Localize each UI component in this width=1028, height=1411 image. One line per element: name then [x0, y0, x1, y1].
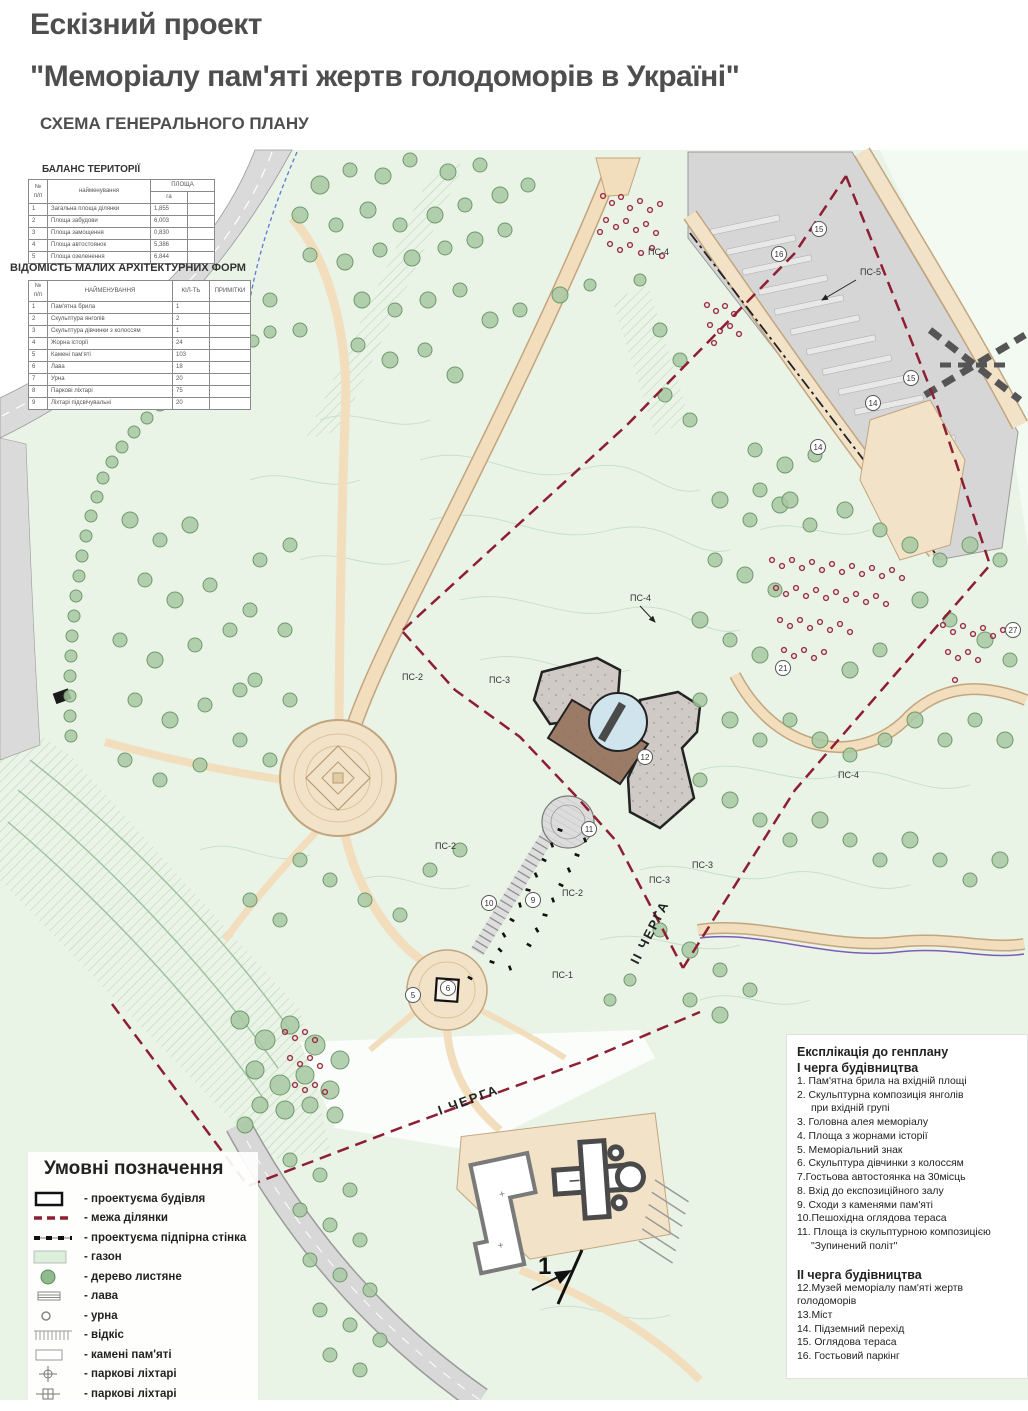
slope-symbol — [32, 1327, 74, 1343]
urn-symbol — [32, 1308, 74, 1324]
explication-item: 10.Пешохідна оглядова тераса — [797, 1212, 1019, 1226]
main-circular-plaza — [280, 720, 396, 836]
table-row: 4Площа автостоянок5,386 — [29, 240, 215, 252]
site-boundary-symbol — [32, 1210, 74, 1226]
legend-item: - камені пам'яті — [32, 1346, 254, 1363]
badge: 14 — [814, 443, 823, 452]
explication-item: 13.Міст — [797, 1309, 1019, 1323]
legend-panel: Умовні позначення - проектуєма будівля -… — [28, 1152, 258, 1411]
explication-item: 4. Площа з жорнами історії — [797, 1130, 1019, 1144]
lawn-symbol — [32, 1249, 74, 1265]
maf-panel: ВІДОМІСТЬ МАЛИХ АРХІТЕКТУРНИХ ФОРМ № п/п… — [10, 262, 251, 410]
legend-item: - проектуєма підпірна стінка — [32, 1229, 254, 1246]
explication-item: 1. Пам'ятна брила на вхідній площі — [797, 1075, 1019, 1089]
explication-item: 12.Музей меморіалу пам'яті жертв голодом… — [797, 1282, 1019, 1309]
ps-label: ПС-2 — [402, 672, 423, 682]
badge: 12 — [641, 753, 650, 762]
table-row: 3Площа замощення0,830 — [29, 228, 215, 240]
ps-label: ПС-4 — [838, 770, 859, 780]
deciduous-tree-symbol — [32, 1269, 74, 1285]
legend-item: - паркові ліхтарі — [32, 1366, 254, 1383]
badge: 16 — [775, 250, 784, 259]
legend-label: - камені пам'яті — [84, 1349, 172, 1361]
page-subtitle: СХЕМА ГЕНЕРАЛЬНОГО ПЛАНУ — [40, 114, 309, 134]
col-header: ПЛОЩА — [151, 180, 215, 192]
col-header: КІЛ-ТЬ — [173, 281, 210, 302]
legend-item: - дерево листяне — [32, 1268, 254, 1285]
table-row: 1Пам'ятна брила1 — [29, 302, 251, 314]
col-header: найменування — [48, 180, 151, 204]
badge: 10 — [485, 899, 494, 908]
explication-item: при вхідній групі — [797, 1102, 1019, 1116]
ps-label: ПС-4 — [648, 247, 669, 257]
legend-label: - урна — [84, 1310, 118, 1322]
ps-label: ПС-2 — [562, 888, 583, 898]
badge: 6 — [446, 984, 451, 993]
legend-item: - проектуєма будівля — [32, 1190, 254, 1207]
explication-item: 6. Скульптура дівчинки з колоссям — [797, 1157, 1019, 1171]
table-row: 7Урна20 — [29, 374, 251, 386]
legend-label: - паркові ліхтарі — [84, 1368, 177, 1380]
badge: 15 — [907, 374, 916, 383]
col-header: № п/п — [29, 180, 48, 204]
legend-label: - проектуєма підпірна стінка — [84, 1232, 246, 1244]
legend-item: - газон — [32, 1249, 254, 1266]
explication-item: 16. Гостьовий паркінг — [797, 1350, 1019, 1364]
explication-item: 7.Гостьова автостоянка на 30місць — [797, 1171, 1019, 1185]
col-header: га — [151, 192, 188, 204]
badge: 15 — [815, 225, 824, 234]
explication-item: "Зупинений політ" — [797, 1240, 1019, 1254]
retaining-wall-symbol — [32, 1230, 74, 1246]
balance-table-title: БАЛАНС ТЕРИТОРІЇ — [42, 164, 215, 175]
legend-item: - урна — [32, 1307, 254, 1324]
table-row: 6Лава18 — [29, 362, 251, 374]
legend-label: - лава — [84, 1290, 118, 1302]
badge: 11 — [585, 825, 594, 834]
col-header: № п/п — [29, 281, 48, 302]
legend-label: - проектуєма будівля — [84, 1193, 205, 1205]
explication-item: 14. Підземний перехід — [797, 1323, 1019, 1337]
col-header: НАЙМЕНУВАННЯ — [48, 281, 173, 302]
page-title-line1: Ескізний проект — [30, 8, 262, 42]
legend-label: - паркові ліхтарі — [84, 1388, 177, 1400]
legend-label: - межа ділянки — [84, 1212, 168, 1224]
phase1-heading: І черга будівництва — [797, 1061, 1019, 1075]
legend-item: - паркові ліхтарі — [32, 1385, 254, 1402]
explication-item: 5. Меморіальний знак — [797, 1144, 1019, 1158]
legend-label: - відкіс — [84, 1329, 124, 1341]
park-lantern-symbol — [32, 1366, 74, 1382]
table-row: 2Площа забудови6,003 — [29, 216, 215, 228]
table-row: 3Скульптура дівчинки з колоссям1 — [29, 326, 251, 338]
ps-label: ПС-4 — [630, 593, 651, 603]
bench-symbol — [32, 1288, 74, 1304]
badge: 27 — [1009, 626, 1018, 635]
maf-table-title: ВІДОМІСТЬ МАЛИХ АРХІТЕКТУРНИХ ФОРМ — [10, 262, 251, 274]
north-arrow-label: 1 — [538, 1253, 551, 1280]
explication-item: 2. Скульптурна композиція янголів — [797, 1089, 1019, 1103]
explication-item: 3. Головна алея меморіалу — [797, 1116, 1019, 1130]
ps-label: ПС-3 — [649, 875, 670, 885]
legend-title: Умовні позначення — [44, 1158, 254, 1180]
table-row: 2Скульптура янголів2 — [29, 314, 251, 326]
building-outline-symbol — [32, 1191, 74, 1207]
table-row: 9Ліхтарі підсвічувальні20 — [29, 398, 251, 410]
badge: 14 — [869, 399, 878, 408]
territory-balance-panel: БАЛАНС ТЕРИТОРІЇ № п/п найменування ПЛОЩ… — [28, 164, 215, 264]
ps-label: ПС-1 — [552, 970, 573, 980]
legend-item: - межа ділянки — [32, 1210, 254, 1227]
legend-label: - газон — [84, 1251, 122, 1263]
col-header: ПРИМІТКИ — [210, 281, 251, 302]
explication-item: 8. Вхід до експозиційного залу — [797, 1185, 1019, 1199]
ps-label: ПС-2 — [435, 841, 456, 851]
table-row: 4Жорна історії24 — [29, 338, 251, 350]
explication-panel: Експлікація до генплану І черга будівниц… — [786, 1034, 1028, 1379]
badge: 21 — [779, 664, 788, 673]
legend-item: - відкіс — [32, 1327, 254, 1344]
table-row: 5Камені пам'яті103 — [29, 350, 251, 362]
table-row: 1Загальна площа ділянки1,855 — [29, 204, 215, 216]
ps-label: ПС-5 — [860, 267, 881, 277]
explication-item: 11. Площа із скульптурною композицією — [797, 1226, 1019, 1240]
balance-table: № п/п найменування ПЛОЩА га 1Загальна пл… — [28, 179, 215, 264]
explication-item: 9. Сходи з каменями пам'яті — [797, 1199, 1019, 1213]
legend-item: - лава — [32, 1288, 254, 1305]
maf-table: № п/п НАЙМЕНУВАННЯ КІЛ-ТЬ ПРИМІТКИ 1Пам'… — [28, 280, 251, 410]
badge: 9 — [531, 896, 536, 905]
memory-stones-symbol — [32, 1347, 74, 1363]
explication-title: Експлікація до генплану — [797, 1045, 1019, 1059]
park-lantern2-symbol — [32, 1386, 74, 1402]
explication-item: 15. Оглядова тераса — [797, 1336, 1019, 1350]
table-row: 8Паркові ліхтарі75 — [29, 386, 251, 398]
page-title-line2: "Меморіалу пам'яті жертв голодоморів в У… — [30, 60, 739, 94]
legend-label: - дерево листяне — [84, 1271, 182, 1283]
ps-label: ПС-3 — [692, 860, 713, 870]
badge: 5 — [411, 991, 416, 1000]
phase2-heading: ІІ черга будівництва — [797, 1268, 1019, 1282]
ps-label: ПС-3 — [489, 675, 510, 685]
